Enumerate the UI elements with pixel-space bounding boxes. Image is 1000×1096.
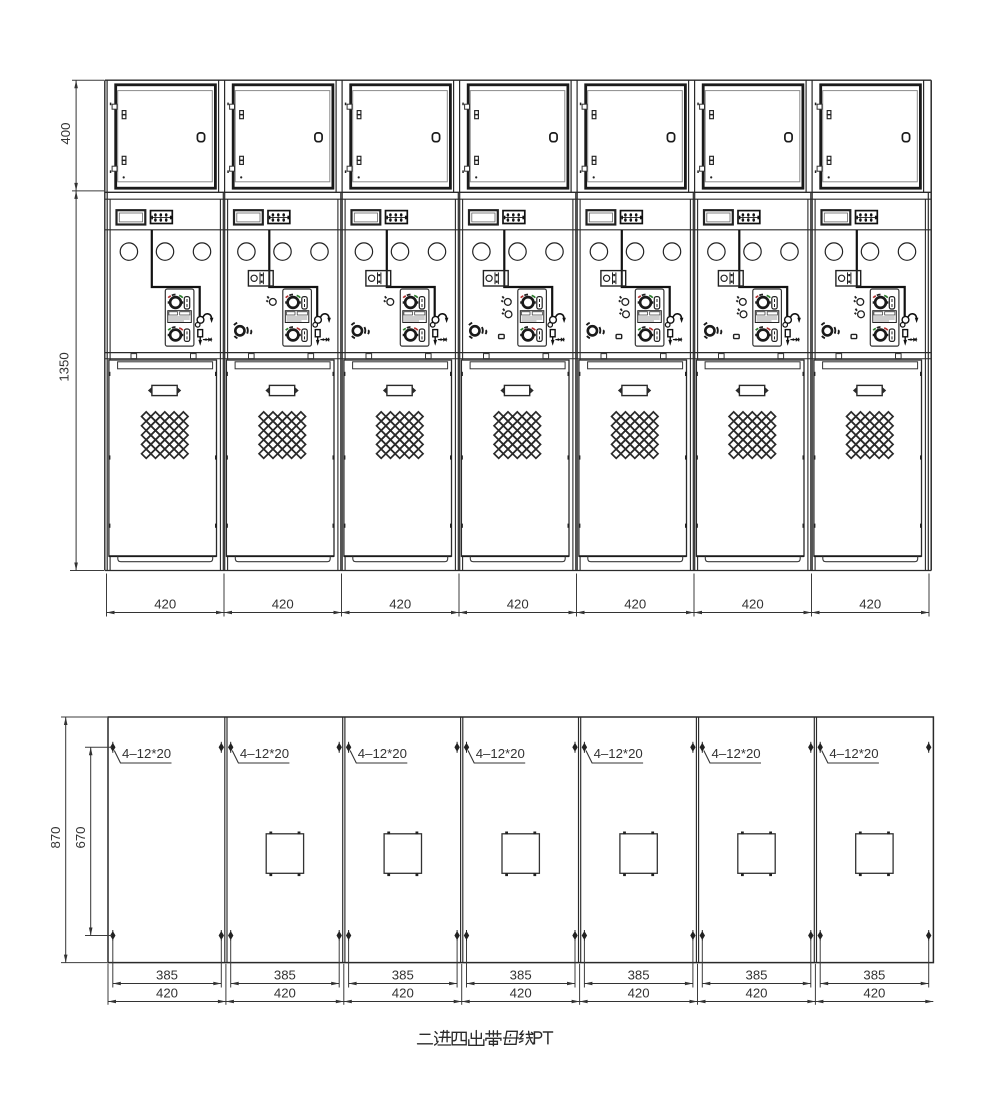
svg-text:670: 670 bbox=[73, 826, 88, 848]
svg-text:420: 420 bbox=[154, 597, 176, 612]
svg-text:400: 400 bbox=[58, 123, 73, 145]
svg-text:1350: 1350 bbox=[57, 352, 72, 381]
svg-text:870: 870 bbox=[48, 826, 63, 848]
